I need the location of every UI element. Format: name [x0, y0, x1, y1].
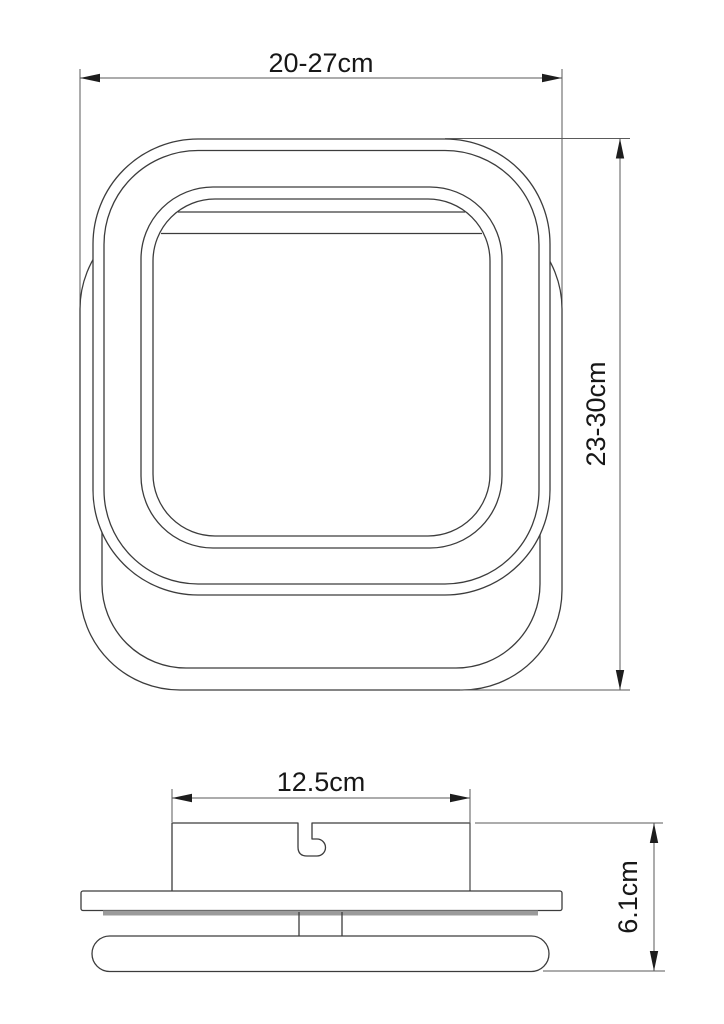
front-width-dimension-label: 20-27cm — [268, 48, 373, 78]
bracket-width-dimension-label: 12.5cm — [277, 767, 366, 797]
mounting-bracket — [172, 823, 470, 891]
arrowhead-right-icon — [542, 74, 562, 82]
front-view-drawing: 20-27cm 23-30cm — [80, 48, 630, 690]
drawing-canvas: 20-27cm 23-30cm 12.5cm 6.1cm — [0, 0, 724, 1024]
arrowhead-down-icon — [650, 951, 658, 971]
drawing-page: 20-27cm 23-30cm 12.5cm 6.1cm — [0, 0, 724, 1024]
canopy-plate-lip — [103, 911, 538, 916]
canopy-plate — [81, 891, 562, 911]
side-view-drawing: 12.5cm 6.1cm — [81, 767, 665, 972]
arrowhead-down-icon — [616, 670, 624, 690]
arrowhead-left-icon — [172, 794, 192, 802]
side-height-dimension-label: 6.1cm — [613, 860, 643, 934]
lamp-ring-side-profile — [92, 936, 549, 972]
arrowhead-right-icon — [450, 794, 470, 802]
arrowhead-up-icon — [650, 823, 658, 843]
arrowhead-left-icon — [80, 74, 100, 82]
arrowhead-up-icon — [616, 139, 624, 159]
front-height-dimension-label: 23-30cm — [581, 361, 611, 466]
